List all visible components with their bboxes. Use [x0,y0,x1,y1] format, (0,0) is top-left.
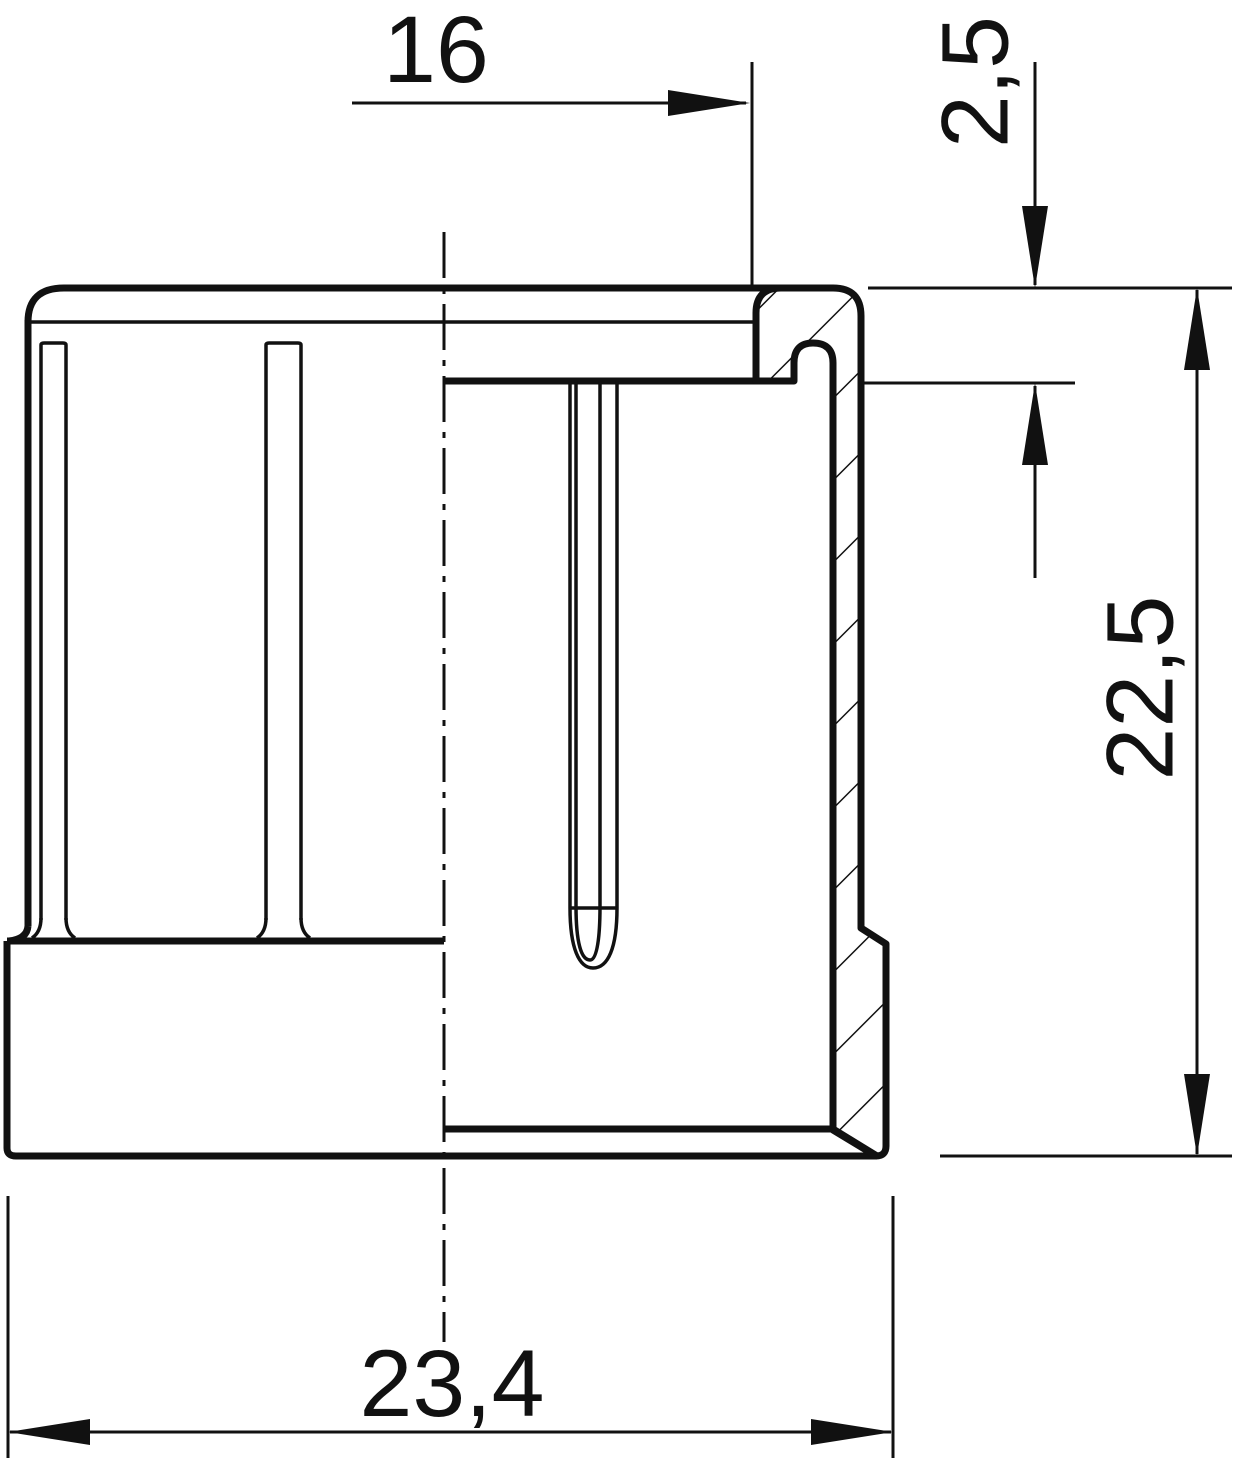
side-slots [32,343,310,938]
slot-right-foot-a [257,918,266,938]
dimension-overall-height: 22,5 [940,288,1232,1156]
slot-right-foot-b [301,918,310,938]
slot-left-foot-a [32,918,41,938]
top-left-corner-arc [28,288,64,322]
dim225-arrow-bottom [1184,1074,1210,1156]
dim234-arrow-right [811,1419,893,1445]
dim234-label: 23,4 [360,1331,545,1437]
dim234-arrow-left [8,1419,90,1445]
cap-outline [7,288,877,1156]
dim25-label: 2,5 [922,16,1028,148]
dim16-label: 16 [383,0,489,103]
dim225-arrow-top [1184,288,1210,370]
technical-drawing-page: 16 2,5 22,5 23,4 [0,0,1237,1470]
section-cut [756,288,886,1156]
dimension-rim-depth: 2,5 [864,16,1232,578]
base-left-wall [7,941,16,1156]
center-pin [570,381,617,968]
dim25-arrow-up [1022,383,1048,465]
slot-left [41,343,66,920]
dim25-arrow-down [1022,206,1048,288]
end-cap-section-drawing: 16 2,5 22,5 23,4 [0,0,1237,1470]
slot-right [266,343,301,920]
dimension-opening-width: 16 [352,0,752,290]
pin-tip-inner-dome [576,906,600,960]
dim225-label: 22,5 [1087,596,1193,781]
dim16-arrow-right [668,90,750,116]
slot-left-foot-b [66,918,75,938]
dimension-base-width: 23,4 [8,1196,893,1458]
hatched-wall-section [756,288,886,1156]
